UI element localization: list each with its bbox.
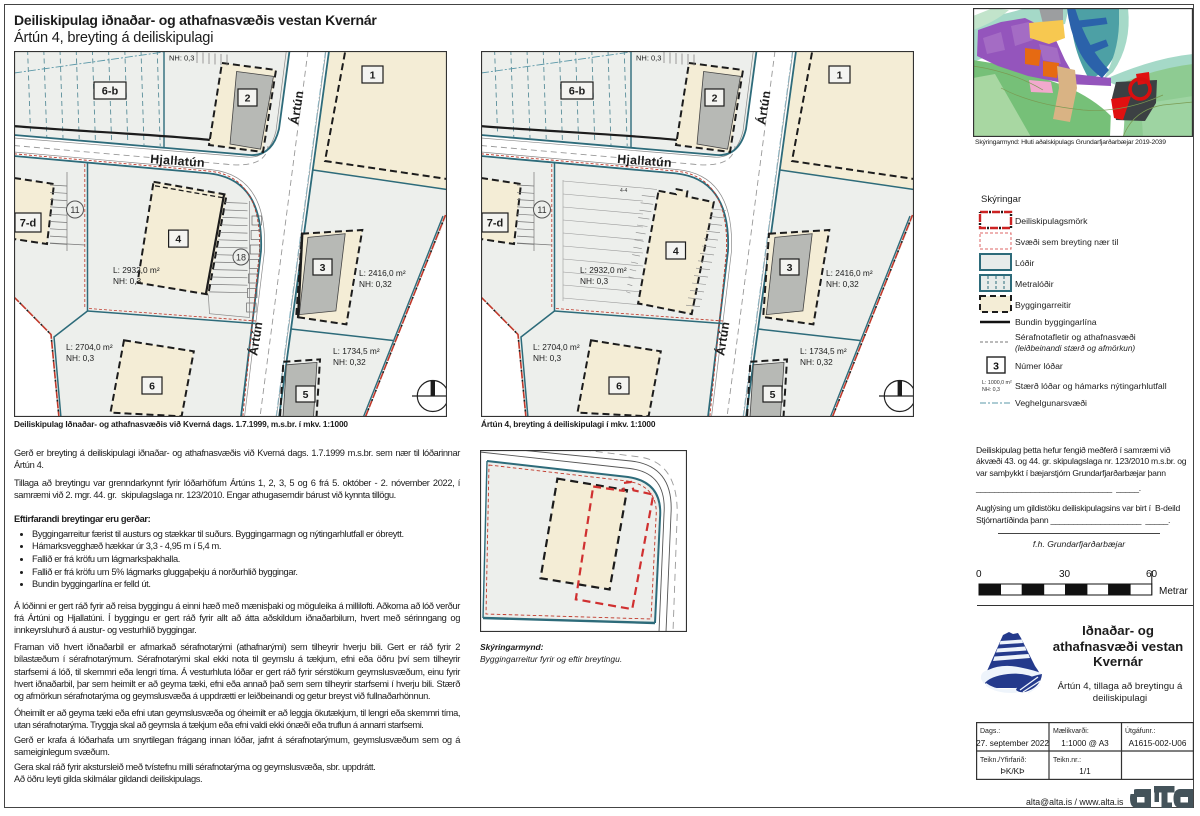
svg-text:NH: 0,3: NH: 0,3 [533,353,562,363]
svg-text:L: 1734,5 m²: L: 1734,5 m² [800,346,847,356]
svg-text:Útgáfunr.:: Útgáfunr.: [1125,726,1155,735]
svg-text:1/1: 1/1 [1079,767,1091,776]
svg-text:NH: 0,32: NH: 0,32 [333,357,366,367]
svg-text:A1615-002-U06: A1615-002-U06 [1129,739,1187,748]
svg-text:NH: 0,32: NH: 0,32 [800,357,833,367]
svg-text:3: 3 [787,262,793,274]
svg-text:4-4: 4-4 [620,188,627,194]
svg-text:Sérafnotafletir og athafnasvæð: Sérafnotafletir og athafnasvæði [1015,332,1136,342]
svg-text:Deiliskipulagsmörk: Deiliskipulagsmörk [1015,216,1088,226]
svg-text:NH: 0,3: NH: 0,3 [66,353,95,363]
svg-text:NH: 0,3: NH: 0,3 [580,276,609,286]
svg-text:11: 11 [537,205,546,215]
svg-text:L: 1734,5 m²: L: 1734,5 m² [333,346,380,356]
svg-text:Teikn./Yfirfarið:: Teikn./Yfirfarið: [980,756,1026,764]
svg-text:ÞK/KÞ: ÞK/KÞ [1000,767,1025,776]
svg-text:L: 2932,0 m²: L: 2932,0 m² [580,265,627,275]
svg-text:1: 1 [370,69,376,81]
svg-text:27. september 2022: 27. september 2022 [976,739,1049,748]
svg-text:Metralóðir: Metralóðir [1015,279,1054,289]
svg-text:Númer lóðar: Númer lóðar [1015,361,1063,371]
svg-text:NH: 0,3: NH: 0,3 [636,54,661,63]
svg-text:5: 5 [303,389,309,401]
svg-text:Metrar: Metrar [1159,586,1189,597]
svg-text:11: 11 [70,205,79,215]
svg-text:Bundin byggingarlína: Bundin byggingarlína [1015,317,1097,327]
svg-text:30: 30 [1059,569,1071,580]
svg-text:5: 5 [770,389,776,401]
svg-text:1:1000 @ A3: 1:1000 @ A3 [1061,739,1109,748]
svg-text:L: 2704,0 m²: L: 2704,0 m² [66,342,113,352]
svg-text:Svæði sem breyting nær til: Svæði sem breyting nær til [1015,237,1118,247]
svg-text:L: 1000,0 m²: L: 1000,0 m² [982,380,1012,386]
svg-text:3: 3 [320,262,326,274]
svg-text:7-d: 7-d [20,217,37,229]
svg-text:4: 4 [673,245,679,257]
svg-text:Mælikvarði:: Mælikvarði: [1053,727,1089,735]
svg-text:(leiðbeinandi stærð og afmörku: (leiðbeinandi stærð og afmörkun) [1015,344,1135,353]
svg-text:4: 4 [175,233,181,245]
svg-text:0: 0 [976,569,982,580]
svg-text:6: 6 [149,380,155,392]
svg-text:NH: 0,3: NH: 0,3 [113,276,142,286]
svg-text:6: 6 [616,380,622,392]
svg-text:7-d: 7-d [487,217,504,229]
svg-text:6-b: 6-b [569,85,586,97]
svg-text:L: 2932,0 m²: L: 2932,0 m² [113,265,160,275]
svg-text:3: 3 [993,361,999,373]
svg-text:Stærð lóðar og hámarks nýtinga: Stærð lóðar og hámarks nýtingarhlutfall [1015,381,1167,391]
svg-text:L: 2704,0 m²: L: 2704,0 m² [533,342,580,352]
svg-text:18: 18 [236,252,246,262]
svg-text:NH: 0,32: NH: 0,32 [359,279,392,289]
svg-text:NH: 0,3: NH: 0,3 [169,54,194,63]
svg-text:6-b: 6-b [102,85,119,97]
svg-text:NH: 0,3: NH: 0,3 [982,387,1000,393]
svg-text:NH: 0,32: NH: 0,32 [826,279,859,289]
svg-text:L: 2416,0 m²: L: 2416,0 m² [826,268,873,278]
svg-text:2: 2 [245,92,251,104]
svg-text:Teikn.nr.:: Teikn.nr.: [1053,757,1081,764]
svg-text:Byggingarreitir: Byggingarreitir [1015,300,1071,310]
svg-text:Lóðir: Lóðir [1015,258,1034,268]
svg-text:1: 1 [837,69,843,81]
svg-text:2: 2 [712,92,718,104]
svg-text:L: 2416,0 m²: L: 2416,0 m² [359,268,406,278]
svg-text:Dags.:: Dags.: [980,728,1000,735]
svg-text:Veghelgunarsvæði: Veghelgunarsvæði [1015,398,1087,408]
